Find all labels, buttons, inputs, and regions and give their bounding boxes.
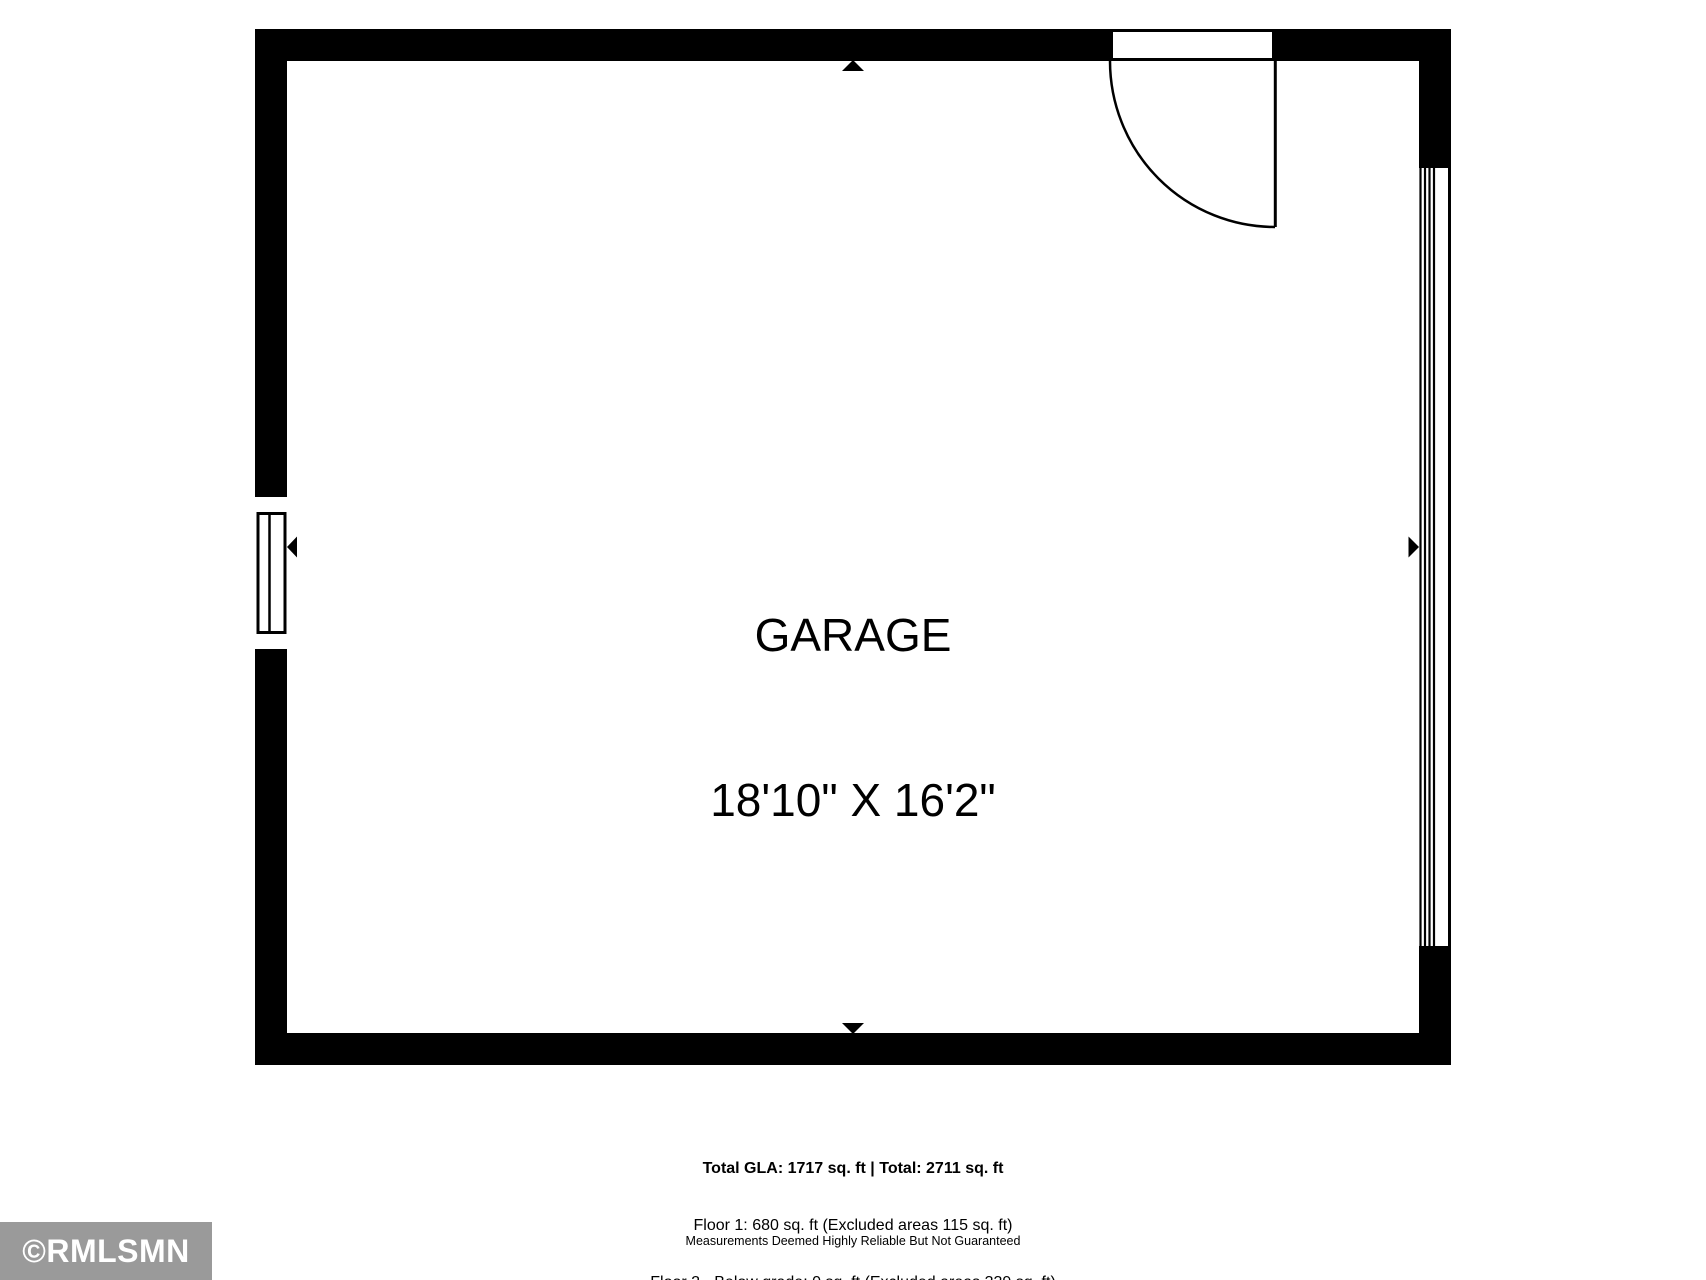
- wall-right-upper-segment: [1419, 29, 1451, 168]
- floor-summary-line: Floor 1: 680 sq. ft (Excluded areas 115 …: [0, 1216, 1706, 1235]
- wall-left-upper-segment: [255, 29, 287, 497]
- watermark-text: ©RMLSMN: [22, 1233, 190, 1270]
- door-swing-arc: [1110, 61, 1275, 227]
- floorplan: GARAGE 18'10" X 16'2" Total GLA: 1717 sq…: [0, 0, 1706, 1280]
- total-gla-line: Total GLA: 1717 sq. ft | Total: 2711 sq.…: [0, 1159, 1706, 1178]
- wall-bottom: [255, 1033, 1451, 1065]
- room-name: GARAGE: [0, 608, 1706, 663]
- wall-midpoint-arrow-top-icon: [842, 60, 864, 71]
- disclaimer-text: Measurements Deemed Highly Reliable But …: [0, 1234, 1706, 1249]
- room-dimensions: 18'10" X 16'2": [0, 773, 1706, 828]
- room-label-block: GARAGE 18'10" X 16'2": [0, 498, 1706, 938]
- watermark-badge: ©RMLSMN: [0, 1222, 212, 1280]
- floor-summary-line: Floor 2 - Below grade: 0 sq. ft (Exclude…: [0, 1273, 1706, 1280]
- door-frame: [1112, 31, 1274, 60]
- wall-midpoint-arrow-bottom-icon: [842, 1023, 864, 1034]
- area-summary: Total GLA: 1717 sq. ft | Total: 2711 sq.…: [0, 1121, 1706, 1280]
- wall-right-lower-segment: [1419, 946, 1451, 1065]
- wall-top-left-segment: [255, 29, 1110, 61]
- entry-door: [1110, 31, 1275, 228]
